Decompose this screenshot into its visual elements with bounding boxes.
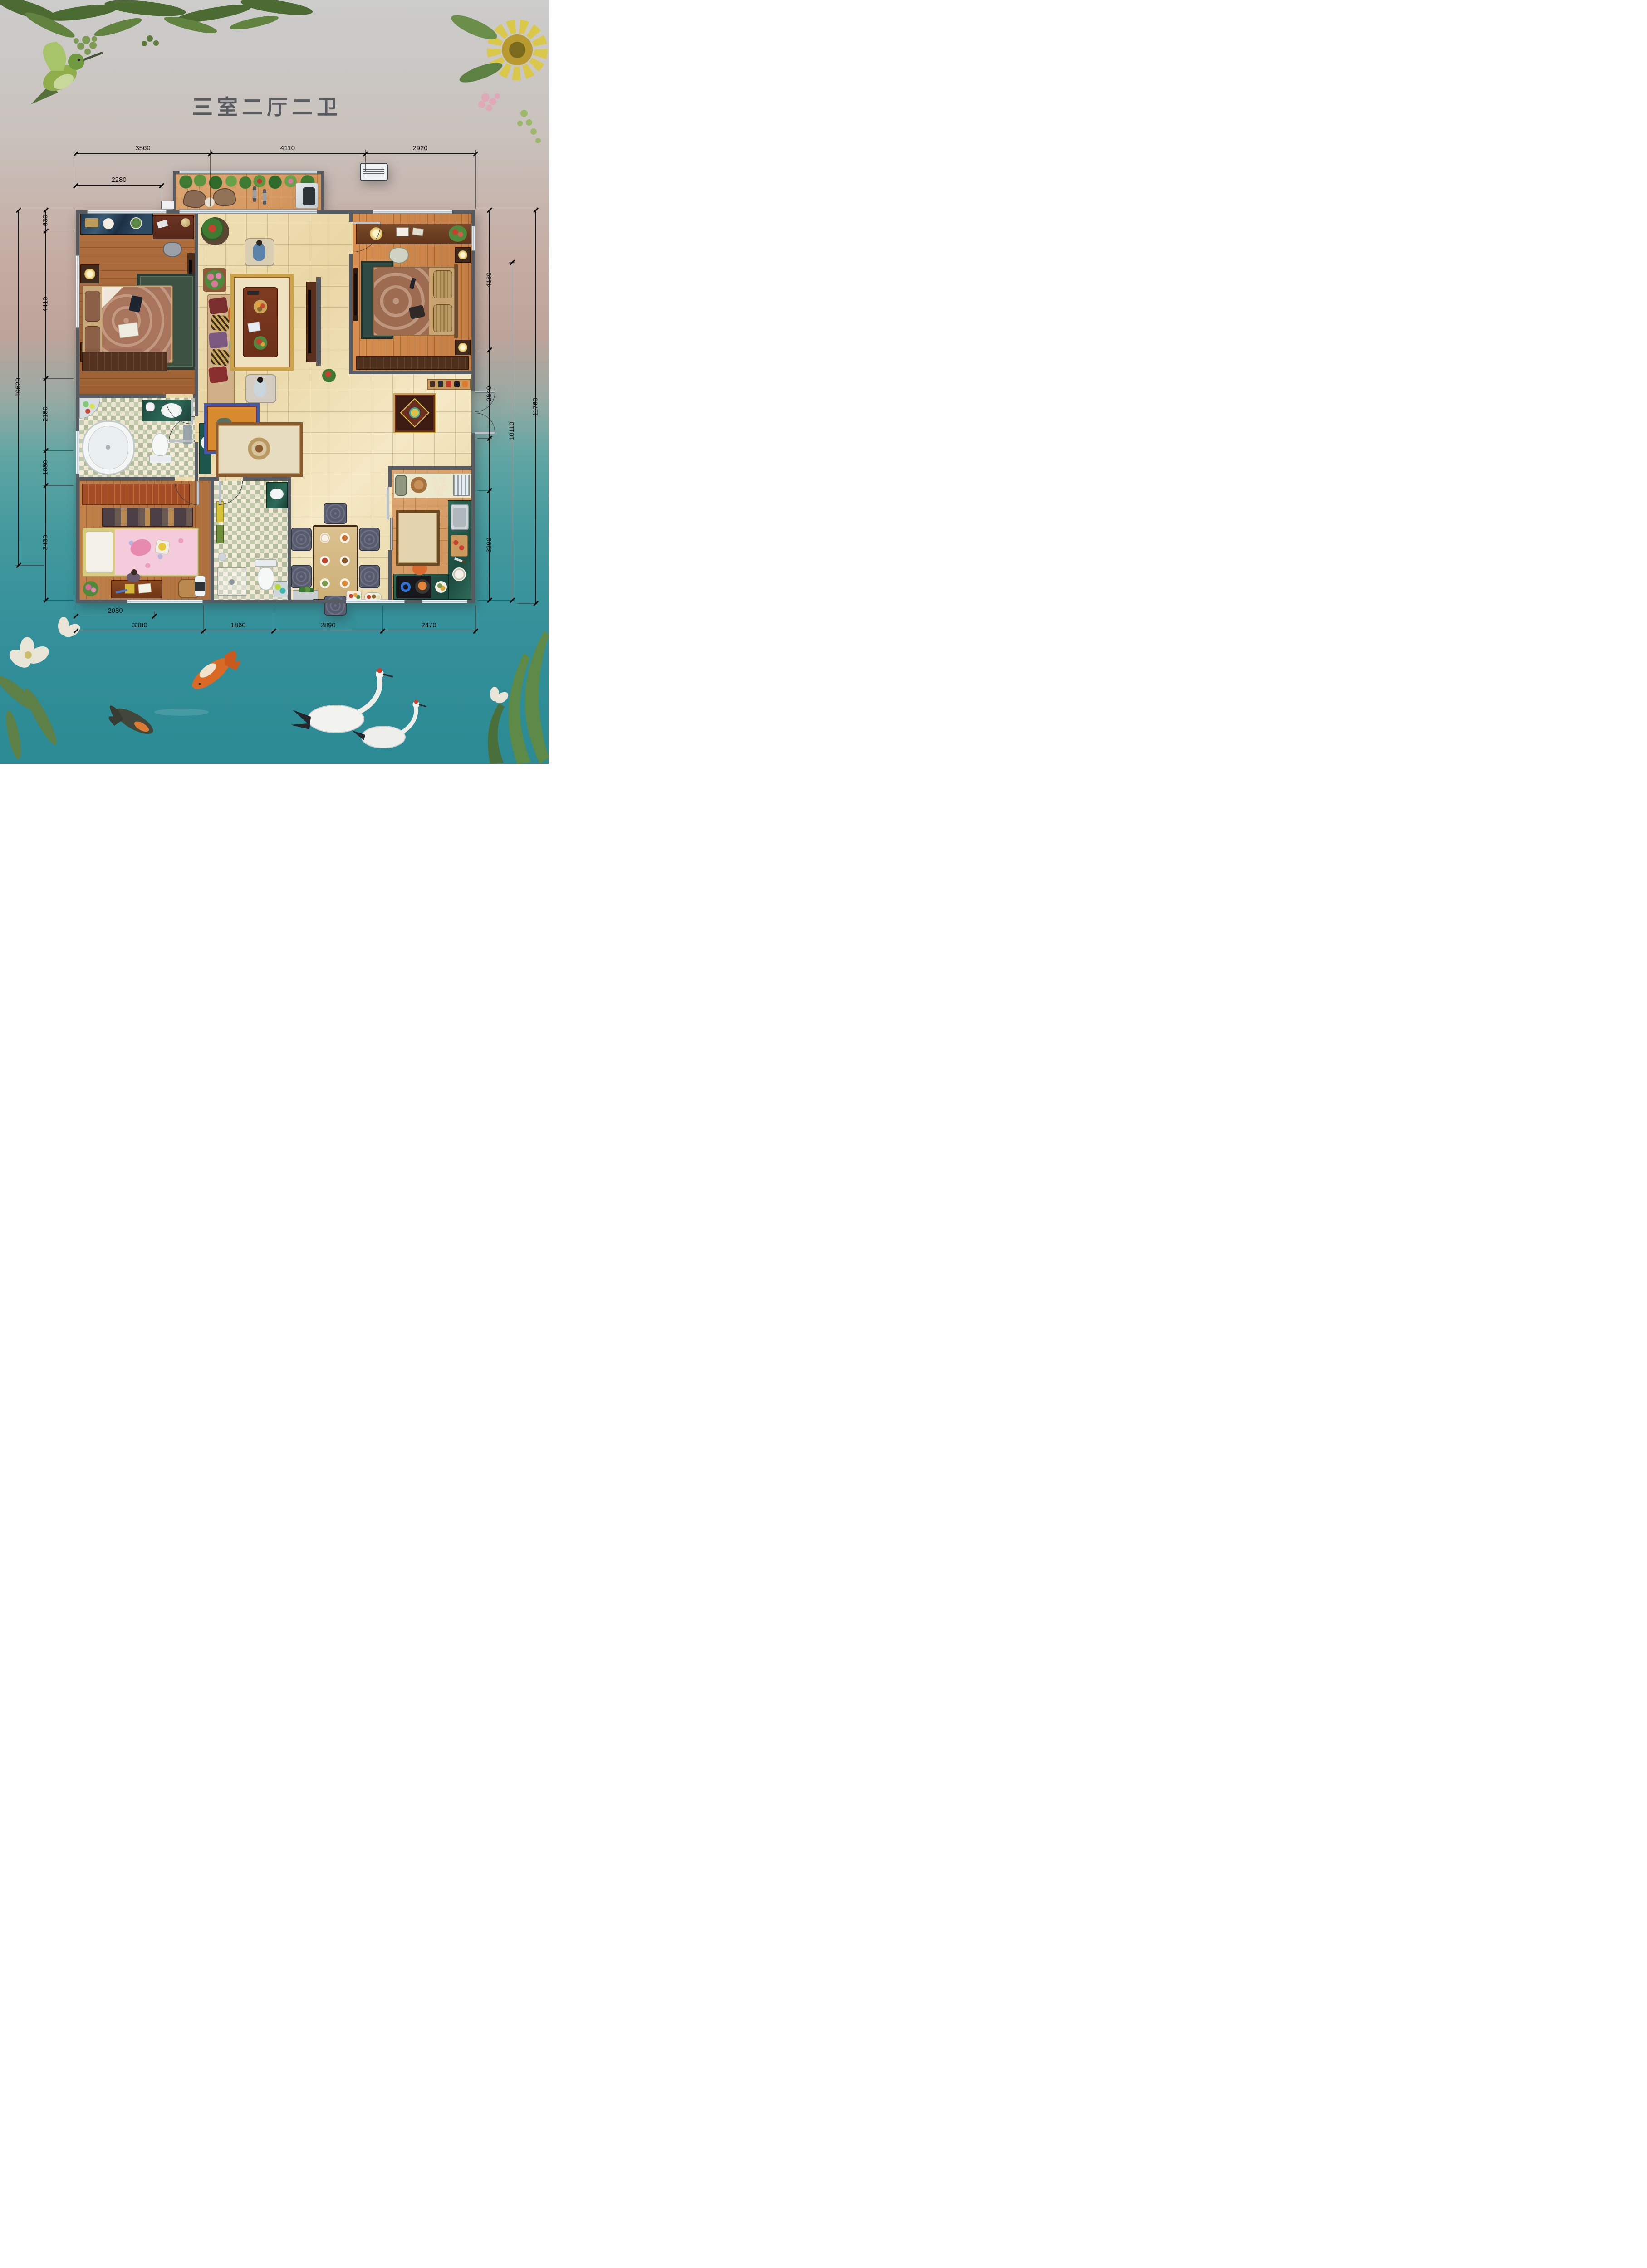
dim-line-top1	[76, 153, 475, 154]
dimension-layer: 3560 4110 2920 2280 10620 630 4410 2150 …	[0, 0, 549, 764]
dim-label: 2080	[108, 607, 123, 615]
dim-label: 4110	[280, 144, 295, 152]
extension-line	[475, 150, 476, 209]
dim-label: 2640	[485, 386, 493, 401]
dim-line-bottom2	[76, 631, 475, 631]
dim-label: 3430	[42, 535, 49, 550]
dim-label: 10620	[15, 378, 22, 397]
dim-label: 2150	[42, 406, 49, 421]
dim-label: 2280	[111, 176, 126, 184]
dim-label: 2920	[412, 144, 427, 152]
extension-line	[43, 378, 74, 379]
extension-line	[477, 600, 515, 601]
extension-line	[15, 565, 44, 566]
extension-line	[162, 182, 162, 211]
dim-label: 10110	[508, 422, 516, 440]
dim-label: 630	[42, 215, 49, 226]
dim-label: 3380	[132, 621, 147, 629]
dim-label: 2890	[320, 621, 335, 629]
extension-line	[43, 600, 74, 601]
extension-line	[477, 210, 537, 210]
dim-label: 11760	[532, 398, 539, 416]
dim-label: 1860	[230, 621, 245, 629]
dim-line-top2	[76, 185, 162, 186]
dim-label: 3560	[135, 144, 150, 152]
dim-label: 4180	[485, 272, 493, 287]
dim-line-bottom1	[76, 616, 154, 616]
dim-label: 3290	[485, 538, 493, 552]
dim-label: 4410	[42, 297, 49, 312]
dim-label: 2470	[421, 621, 436, 629]
extension-line	[43, 231, 74, 231]
extension-line	[43, 450, 74, 451]
extension-line	[210, 150, 211, 206]
extension-line	[43, 485, 74, 486]
floorplan-poster: 三室二厅二卫	[0, 0, 549, 764]
dim-label: 1050	[42, 460, 49, 475]
dim-tick	[73, 183, 78, 188]
